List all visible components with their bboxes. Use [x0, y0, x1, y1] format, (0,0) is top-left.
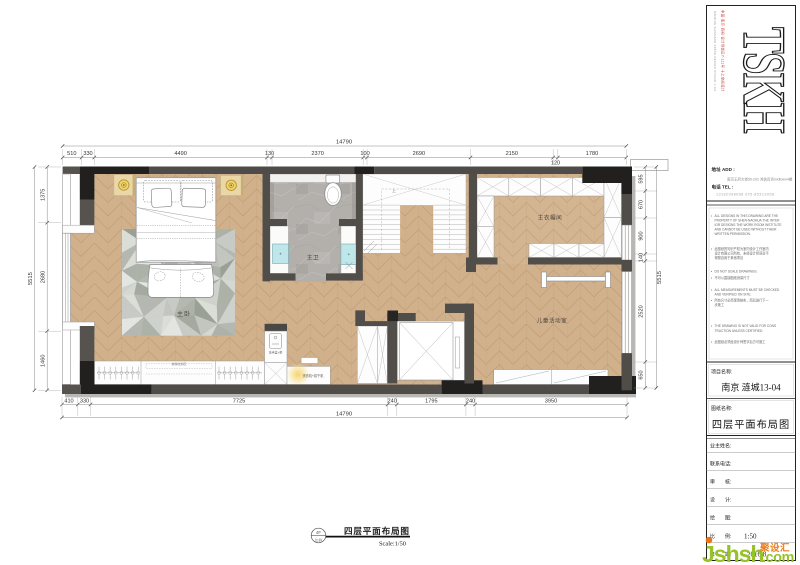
- svg-text:1780: 1780: [586, 151, 598, 157]
- svg-text:330: 330: [83, 151, 92, 157]
- svg-text:2680: 2680: [41, 271, 47, 283]
- svg-text:THE DRAWING IS NOT VALID FOR C: THE DRAWING IS NOT VALID FOR CONS: [715, 324, 777, 328]
- svg-text:南京 涟城13-04: 南京 涟城13-04: [721, 382, 781, 393]
- svg-text:业主姓名:: 业主姓名:: [710, 443, 731, 450]
- svg-text:13182998088 025-85313058: 13182998088 025-85313058: [716, 193, 774, 197]
- svg-text:主衣帽间: 主衣帽间: [538, 214, 562, 222]
- svg-text:四层平面布局图: 四层平面布局图: [712, 419, 790, 431]
- svg-text:主卧: 主卧: [177, 310, 191, 318]
- svg-text:4F: 4F: [316, 530, 321, 535]
- svg-text:得擅自用于其他项目: 得擅自用于其他项目: [715, 255, 744, 260]
- svg-text:650: 650: [639, 370, 645, 379]
- svg-text:3950: 3950: [545, 398, 557, 404]
- svg-text:•: •: [711, 324, 712, 328]
- svg-text:此图纸必须经设计师签字后方可施工: 此图纸必须经设计师签字后方可施工: [715, 339, 767, 344]
- svg-text:地址 ADD :: 地址 ADD :: [712, 166, 736, 173]
- svg-text:•: •: [711, 299, 712, 303]
- svg-text:AND VERIFIED ON SITE.: AND VERIFIED ON SITE.: [715, 293, 752, 297]
- svg-text:1460: 1460: [41, 354, 47, 366]
- svg-text:NANJING SHISHANG SPACE DESIGN: NANJING SHISHANG SPACE DESIGN STUDIO 7-1…: [713, 11, 717, 92]
- svg-text:•: •: [711, 247, 712, 251]
- svg-text:ALL MEASUREMENTS MUST BE CHECK: ALL MEASUREMENTS MUST BE CHECKED: [715, 288, 781, 292]
- svg-text:•: •: [711, 276, 712, 280]
- svg-text:电话 TEL :: 电话 TEL :: [712, 184, 734, 191]
- svg-text:AND CANNOT BE USED WITHOUT THE: AND CANNOT BE USED WITHOUT THEIR: [715, 228, 778, 232]
- svg-text:1795: 1795: [425, 398, 437, 404]
- svg-text:聚设汇: 聚设汇: [759, 542, 790, 554]
- svg-text:设 计:: 设 计:: [710, 497, 731, 504]
- svg-text:上: 上: [392, 187, 396, 193]
- svg-text:2690: 2690: [413, 151, 425, 157]
- svg-text:•: •: [711, 340, 712, 344]
- svg-text:•: •: [711, 214, 712, 218]
- svg-text:DO NOT SCALE DRAWINGS.: DO NOT SCALE DRAWINGS.: [715, 270, 758, 274]
- svg-text:洗衣机+烘干机: 洗衣机+烘干机: [303, 373, 325, 378]
- svg-text:14790: 14790: [336, 140, 352, 146]
- svg-text:240: 240: [388, 398, 397, 404]
- svg-text:900: 900: [639, 231, 645, 240]
- svg-text:5515: 5515: [657, 271, 663, 284]
- svg-text:所有尺寸必须现场核实，而后进行下一: 所有尺寸必须现场核实，而后进行下一: [715, 298, 770, 303]
- svg-text:主卫: 主卫: [307, 254, 320, 262]
- svg-text:南京王府大街50-202 鸿信百货midtown4楼: 南京王府大街50-202 鸿信百货midtown4楼: [727, 177, 793, 182]
- svg-text:IOR DESIGNS THE WORK ROOM INST: IOR DESIGNS THE WORK ROOM INSTITUTE: [715, 223, 782, 227]
- svg-text:240: 240: [466, 398, 475, 404]
- svg-text:1:50: 1:50: [744, 533, 757, 541]
- svg-text:审 核:: 审 核:: [710, 479, 731, 486]
- svg-text:图纸名称:: 图纸名称:: [711, 405, 732, 412]
- svg-text:595: 595: [639, 174, 645, 183]
- svg-text:100: 100: [360, 151, 369, 157]
- svg-text:四层平面布局图: 四层平面布局图: [344, 525, 410, 536]
- svg-text:项目名称:: 项目名称:: [711, 369, 732, 376]
- svg-text:WRITTEN PERMISSION.: WRITTEN PERMISSION.: [715, 232, 751, 236]
- svg-text:14790: 14790: [336, 411, 352, 417]
- svg-text:Scale:1/50: Scale:1/50: [379, 541, 406, 548]
- svg-text:4490: 4490: [174, 151, 186, 157]
- svg-text:5515: 5515: [28, 272, 34, 285]
- svg-text:120: 120: [551, 161, 560, 167]
- svg-text:中国·南京·西祠·设计师街区7-111号 十上空间设计: 中国·南京·西祠·设计师街区7-111号 十上空间设计: [721, 10, 726, 92]
- svg-text:联系电话:: 联系电话:: [710, 461, 731, 468]
- svg-text:洗手盆+柜: 洗手盆+柜: [269, 350, 283, 355]
- svg-text:140: 140: [639, 253, 645, 262]
- svg-text:TSKH: TSKH: [730, 27, 796, 133]
- svg-text:•: •: [711, 270, 712, 274]
- svg-text:•: •: [711, 288, 712, 292]
- svg-text:670: 670: [639, 200, 645, 209]
- svg-text:比例: 比例: [315, 538, 323, 543]
- svg-text:130: 130: [265, 151, 274, 157]
- svg-text:此图纸的知识产权为室内设计工作室内: 此图纸的知识产权为室内设计工作室内: [715, 246, 769, 251]
- svg-text:不可以直接图纸测量尺寸: 不可以直接图纸测量尺寸: [715, 275, 751, 280]
- svg-text:510: 510: [67, 151, 76, 157]
- svg-text:7725: 7725: [233, 398, 245, 404]
- svg-text:Jshsh: Jshsh: [702, 541, 763, 565]
- svg-text:2150: 2150: [506, 151, 518, 157]
- svg-text:410: 410: [64, 398, 73, 404]
- svg-text:ALL DESIGNS IN THIS DRAWING AR: ALL DESIGNS IN THIS DRAWING ARE THE: [715, 214, 779, 218]
- svg-text:TRUCTION UNLESS CERTIFIED.: TRUCTION UNLESS CERTIFIED.: [715, 329, 764, 333]
- svg-text:设计有限公司所有，未经设计师同意不: 设计有限公司所有，未经设计师同意不: [715, 251, 770, 256]
- svg-text:1375: 1375: [41, 189, 47, 201]
- svg-text:2370: 2370: [311, 151, 323, 157]
- svg-text:比 例:: 比 例:: [710, 533, 731, 540]
- svg-text:儿童活动室: 儿童活动室: [537, 317, 567, 325]
- svg-text:绘 图:: 绘 图:: [710, 515, 731, 522]
- svg-text:步施工: 步施工: [715, 302, 725, 307]
- svg-text:被褥收纳区: 被褥收纳区: [171, 361, 186, 366]
- svg-text:PROPERTY OF SHEN-NAOHUA.THE IN: PROPERTY OF SHEN-NAOHUA.THE INTER: [715, 219, 781, 223]
- svg-text:330: 330: [80, 398, 89, 404]
- svg-text:2520: 2520: [639, 305, 645, 317]
